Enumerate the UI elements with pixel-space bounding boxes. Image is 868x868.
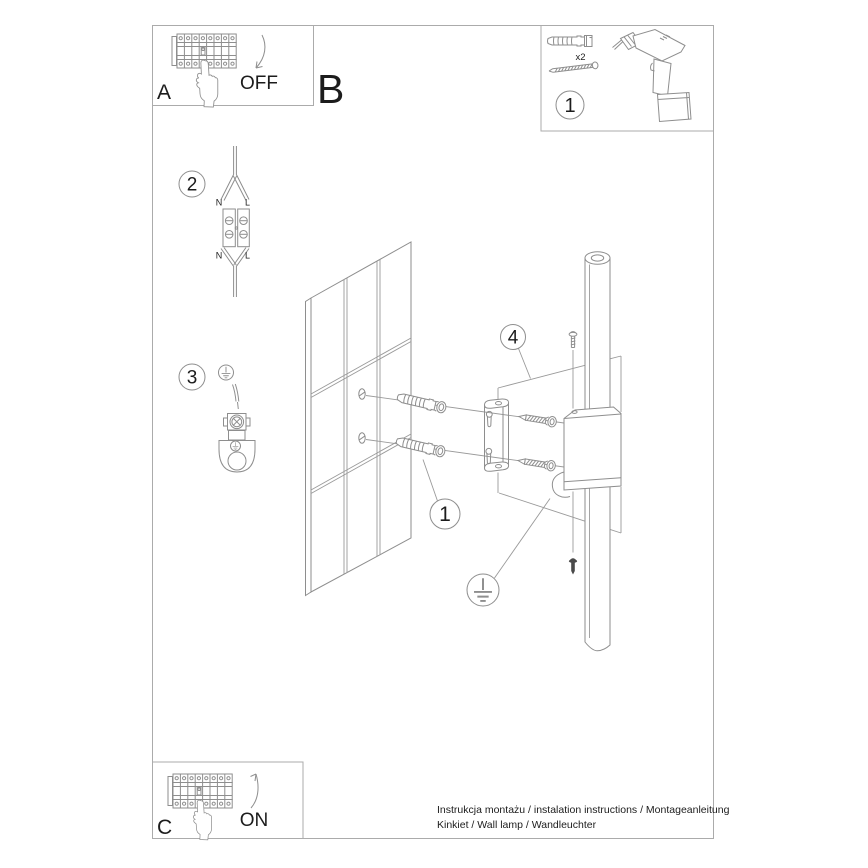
wire-label-l-bottom: L (245, 251, 250, 261)
power-on-step-box: C ON (153, 762, 304, 840)
instruction-sheet: A OFF B x2 1 (0, 0, 868, 868)
ground-symbol-callout (467, 499, 550, 607)
screw-icon (549, 62, 599, 75)
drill-icon (613, 30, 692, 122)
power-off-step-box: A OFF (153, 26, 314, 108)
mounting-illustration: 1 4 (306, 242, 622, 651)
parts-callout-1: 1 (556, 91, 584, 119)
ground-terminal-icon (219, 384, 255, 472)
step-callout-2: 2 (179, 171, 205, 197)
ground-step: 3 (179, 364, 255, 472)
svg-text:1: 1 (439, 503, 451, 526)
parts-box: x2 1 (541, 26, 714, 132)
tiled-wall (306, 242, 412, 596)
svg-text:4: 4 (508, 328, 519, 349)
bracket-screw (518, 411, 557, 427)
footer-line-1: Instrukcja montażu / instalation instruc… (437, 804, 730, 816)
lamp-mount-block (564, 407, 621, 490)
bottom-screw (569, 492, 577, 575)
on-label: ON (240, 810, 269, 831)
svg-text:1: 1 (564, 95, 575, 117)
mounting-bracket (484, 399, 508, 471)
wire-label-n-top: N (216, 198, 223, 208)
ground-symbol-icon (219, 365, 234, 380)
anchor-callout-1: 1 (423, 460, 460, 530)
arrow-up-icon (251, 774, 259, 808)
footer-line-2: Kinkiet / Wall lamp / Wandleuchter (437, 819, 597, 831)
wire-label-n-bottom: N (216, 251, 223, 261)
step-letter-c: C (157, 816, 172, 839)
bracket-screw (517, 455, 556, 471)
wall-anchor-icon (548, 36, 593, 47)
footer-text: Instrukcja montażu / instalation instruc… (437, 804, 730, 831)
step-callout-3: 3 (179, 364, 205, 390)
fixture-callout-4: 4 (501, 325, 531, 379)
cable-terminal-icon (221, 146, 249, 297)
svg-text:3: 3 (187, 368, 198, 389)
svg-text:2: 2 (187, 175, 198, 196)
step-letter-a: A (157, 81, 171, 104)
instruction-drawing: A OFF B x2 1 (0, 0, 868, 868)
wire-label-l-top: L (245, 198, 250, 208)
off-label: OFF (240, 73, 278, 94)
step-letter-b: B (317, 66, 344, 112)
anchor-qty-label: x2 (575, 52, 585, 63)
set-screw (569, 332, 577, 409)
arrow-down-icon (256, 35, 265, 68)
wiring-step: 2 N L N L (179, 146, 250, 297)
